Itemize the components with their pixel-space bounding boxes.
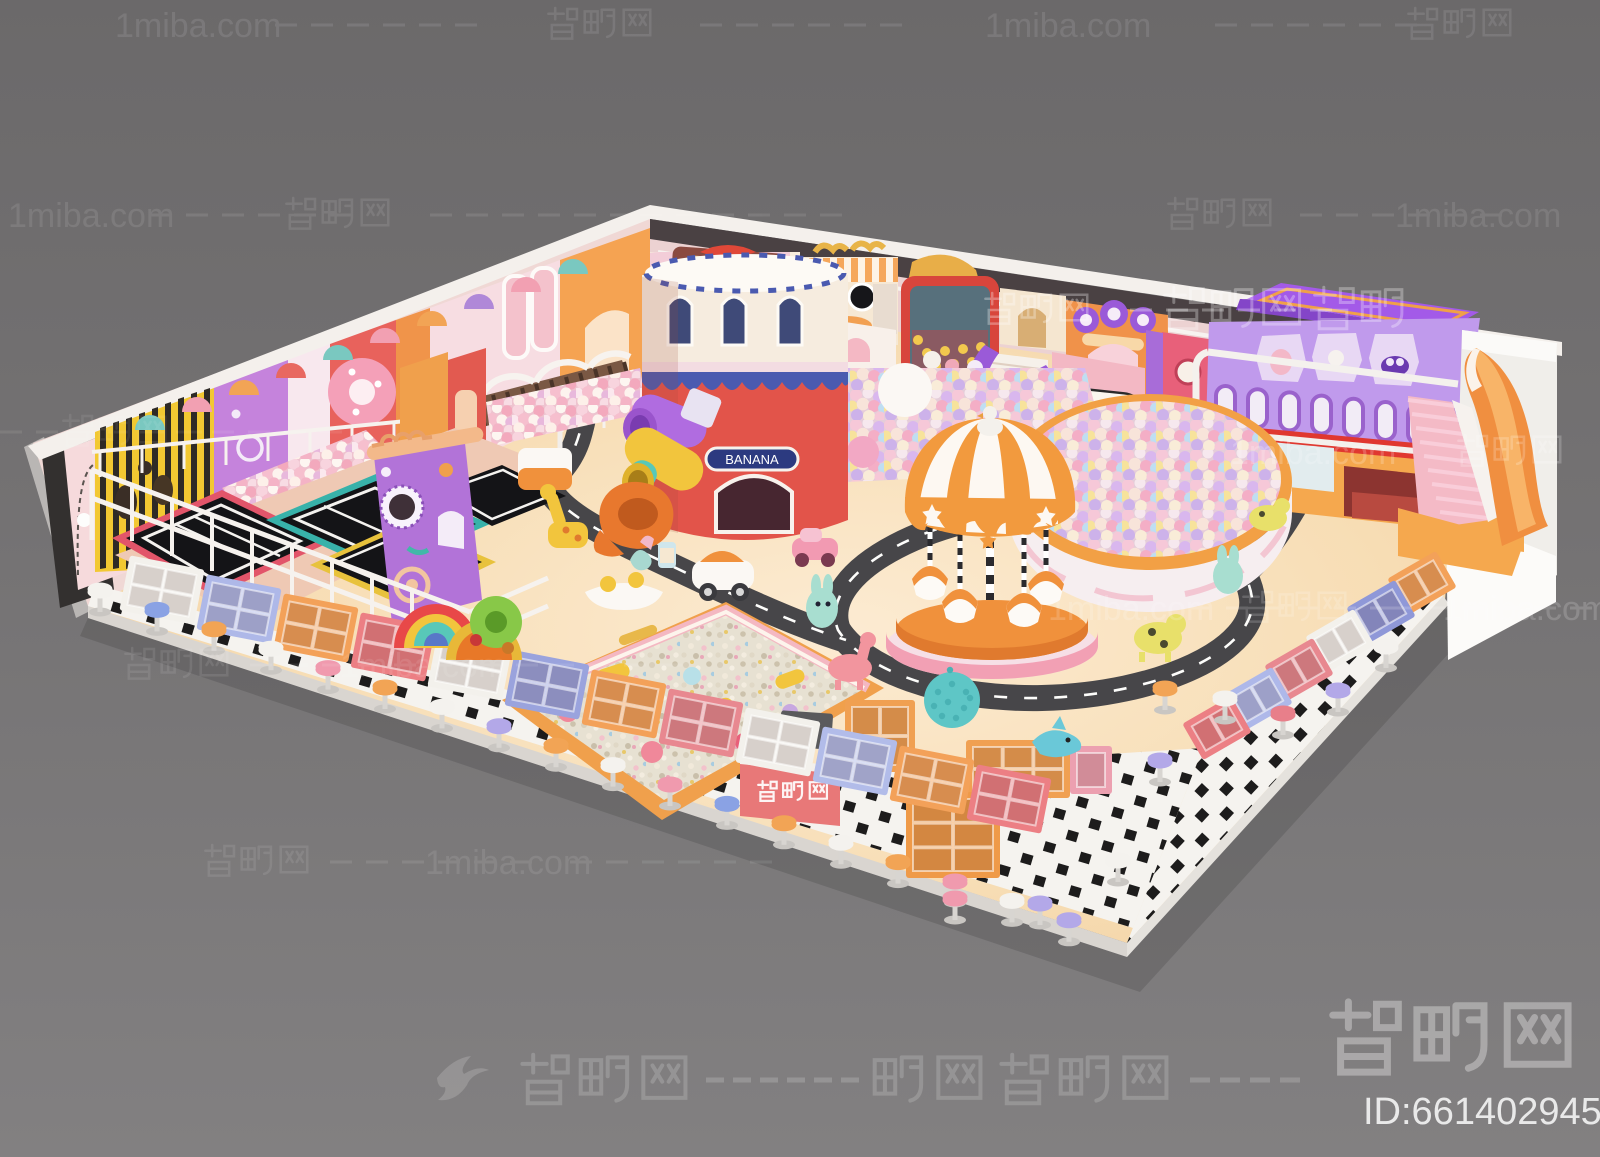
- svg-text:1miba.com: 1miba.com: [8, 197, 174, 235]
- svg-text:1miba.com: 1miba.com: [1048, 590, 1214, 628]
- svg-text:BANANA: BANANA: [725, 452, 779, 467]
- svg-text:1miba.com: 1miba.com: [1443, 590, 1600, 628]
- svg-text:1miba.com: 1miba.com: [115, 7, 281, 45]
- svg-text:1miba.com: 1miba.com: [1230, 434, 1396, 472]
- svg-text:1miba.com: 1miba.com: [1395, 197, 1561, 235]
- svg-text:ID:661402945: ID:661402945: [1363, 1091, 1600, 1133]
- svg-text:1miba.com: 1miba.com: [425, 844, 591, 882]
- svg-text:1miba.com: 1miba.com: [985, 7, 1151, 45]
